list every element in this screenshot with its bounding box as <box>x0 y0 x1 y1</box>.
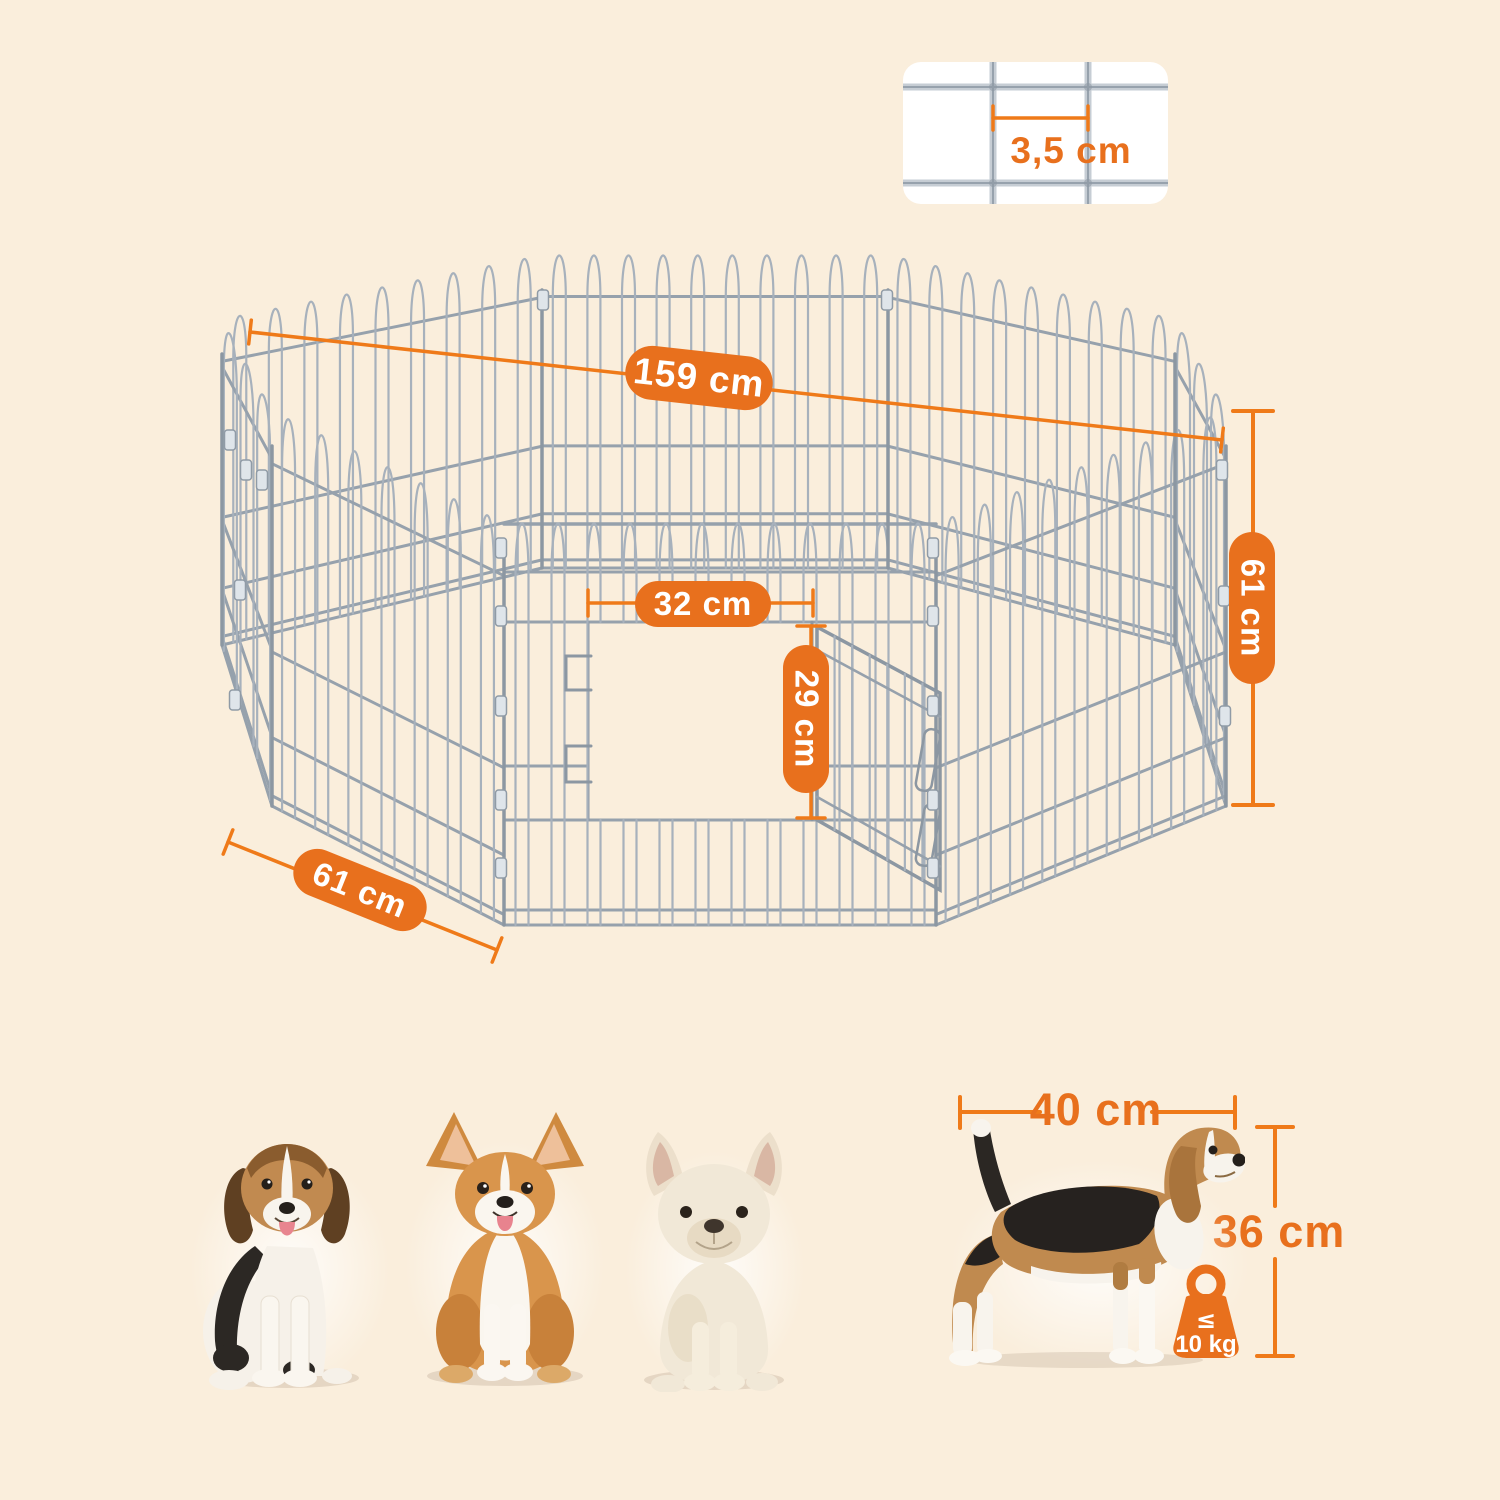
panel-height-pill: 61 cm <box>1229 532 1275 684</box>
puppy-rear-paw-left <box>209 1370 249 1390</box>
bulldog-paw-left <box>684 1373 716 1391</box>
corgi-illustration <box>412 1108 598 1390</box>
corgi-eye-glint-right <box>527 1184 531 1188</box>
bulldog-eye-left <box>680 1206 692 1218</box>
mesh-detail-card: 3,5 cm <box>903 62 1168 204</box>
beagle-saddle <box>1004 1186 1160 1252</box>
corgi-front-leg-right <box>510 1304 526 1370</box>
bulldog-paw-right <box>713 1373 745 1391</box>
beagle-front-leg-top <box>1139 1258 1155 1284</box>
corgi-haunch-right <box>526 1294 574 1370</box>
puppy-tongue <box>279 1222 295 1236</box>
puppy-eye-right <box>302 1179 313 1190</box>
door-height-label: 29 cm <box>787 670 825 769</box>
weight-value-text: 10 kg <box>1175 1331 1236 1358</box>
corgi-paw-right <box>503 1363 533 1381</box>
corgi-rear-paw-right <box>537 1365 571 1383</box>
door-width-label: 32 cm <box>654 585 753 623</box>
beagle-front-paw-far <box>1109 1348 1137 1364</box>
beagle-front-leg-far-top <box>1113 1262 1128 1290</box>
bulldog-front-leg-right <box>720 1322 737 1380</box>
puppy-eye-glint-left <box>267 1180 270 1183</box>
bulldog-rear-paw-right <box>746 1373 778 1391</box>
beagle-front-paw <box>1134 1348 1164 1364</box>
beagle-rear-paw-far <box>974 1349 1002 1363</box>
puppy-nose <box>279 1202 295 1214</box>
dim-159-tick-start <box>249 320 252 344</box>
weight-limit-icon: ≤ 10 kg <box>1168 1262 1248 1362</box>
puppy-front-leg-left <box>261 1296 279 1378</box>
beagle-eye <box>1209 1146 1218 1155</box>
puppy-hip-patch <box>213 1344 249 1372</box>
french-bulldog-illustration <box>630 1126 798 1392</box>
beagle-tail <box>973 1124 1011 1212</box>
beagle-tail-tip <box>971 1119 991 1137</box>
beagle-rear-leg-far <box>977 1292 993 1354</box>
puppy-front-leg-right <box>291 1296 309 1378</box>
corgi-haunch-left <box>436 1294 484 1370</box>
beagle-rear-leg <box>953 1302 972 1356</box>
puppy-eye-glint-right <box>307 1180 310 1183</box>
mesh-size-label: 3,5 cm <box>1010 130 1131 172</box>
corgi-eye-left <box>477 1182 489 1194</box>
corgi-rear-paw-left <box>439 1365 473 1383</box>
puppy-paw-right <box>283 1369 317 1387</box>
corgi-eye-right <box>521 1182 533 1194</box>
corgi-nose <box>497 1196 514 1208</box>
corgi-paw-left <box>477 1363 507 1381</box>
beagle-puppy-illustration <box>195 1126 379 1392</box>
bulldog-front-leg-left <box>692 1322 709 1380</box>
door-height-pill: 29 cm <box>783 645 829 793</box>
puppy-eye-left <box>262 1179 273 1190</box>
puppy-rear-paw-right <box>322 1368 352 1384</box>
bulldog-nose <box>704 1219 724 1233</box>
bulldog-eye-right <box>736 1206 748 1218</box>
weight-operator-text: ≤ <box>1196 1306 1216 1334</box>
puppy-paw-left <box>252 1369 286 1387</box>
playpen-infographic: 3,5 cm 159 cm 32 cm 29 cm 61 cm 61 cm 40… <box>0 0 1500 1500</box>
beagle-nose <box>1233 1154 1246 1167</box>
panel-height-label: 61 cm <box>1233 559 1271 658</box>
mesh-dim <box>993 106 1088 130</box>
corgi-eye-glint-left <box>483 1184 487 1188</box>
corgi-front-leg-left <box>484 1304 500 1370</box>
diagonal-dimension-label: 159 cm <box>631 350 766 406</box>
door-width-pill: 32 cm <box>635 581 771 627</box>
